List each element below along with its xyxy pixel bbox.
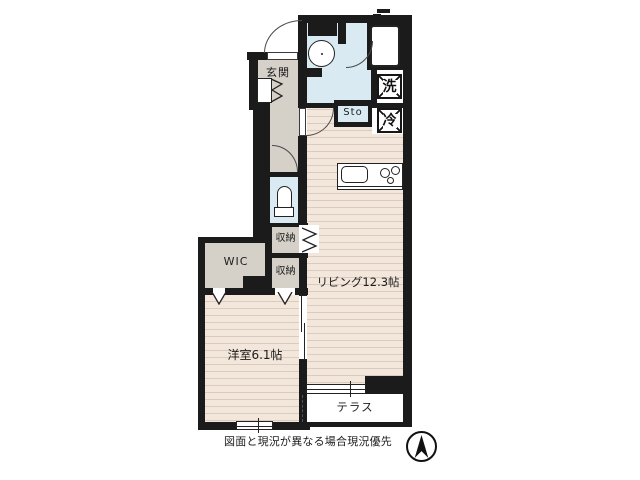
- door-swing-mark: [211, 292, 227, 305]
- terrace-wall: [306, 422, 412, 427]
- wall: [299, 255, 307, 295]
- wall: [298, 68, 322, 77]
- bedroom-label: 洋室6.1帖: [220, 349, 290, 362]
- door-swing-mark: [277, 292, 293, 305]
- floorplan-canvas: 洗 冷 玄関 Sto 収納 収納 WIC リビング12.3帖 洋室6.1帖 テラ…: [0, 0, 640, 480]
- counter-edge: [338, 186, 402, 187]
- fridge-label: 冷: [383, 114, 397, 128]
- stove-burner-icon: [391, 166, 400, 175]
- shoe-cabinet: [257, 78, 272, 103]
- bifold-door-icon: [302, 227, 318, 253]
- terrace-label: テラス: [307, 401, 403, 414]
- vanity-counter: [308, 23, 337, 36]
- storage-upper-label: 収納: [272, 233, 299, 244]
- sliding-door-icon: [299, 295, 307, 360]
- pillar: [243, 276, 270, 290]
- washer-label: 洗: [383, 80, 397, 94]
- water-heater-mark: [377, 9, 390, 13]
- wall: [198, 237, 205, 430]
- storage-lower-label: 収納: [272, 266, 299, 277]
- basin-drain-dot: [321, 53, 323, 55]
- living-area: [307, 103, 403, 393]
- wall: [403, 15, 412, 427]
- wic-label: WIC: [205, 256, 267, 268]
- sto-label: Sto: [338, 107, 368, 118]
- wall: [270, 172, 298, 177]
- living-door: [299, 108, 306, 136]
- terrace-boundary-dashed: [302, 395, 303, 422]
- wall: [338, 22, 346, 44]
- disclaimer-caption: 図面と現況が異なる場合現況優先: [224, 436, 392, 448]
- wall: [253, 103, 270, 237]
- stove-burner-icon: [387, 177, 394, 184]
- living-label: リビング12.3帖: [313, 276, 403, 289]
- toilet-tank-icon: [274, 207, 294, 217]
- folding-door-icon: [271, 78, 284, 103]
- wall: [298, 136, 307, 227]
- pillar: [365, 376, 403, 394]
- balcony-window-icon: [306, 384, 366, 394]
- entrance-label: 玄関: [258, 67, 298, 79]
- entry-door-arc: [264, 20, 302, 53]
- north-arrow-icon: [406, 431, 437, 462]
- bathtub-icon: [370, 25, 400, 67]
- bedroom-window-icon: [236, 421, 273, 430]
- kitchen-sink-icon: [341, 166, 368, 183]
- washing-machine-icon: 洗: [377, 74, 402, 99]
- kitchen-counter: [337, 163, 403, 190]
- water-heater-mark: [373, 14, 381, 17]
- entry-door: [267, 52, 298, 60]
- wall: [198, 237, 272, 243]
- wash-basin-icon: [308, 40, 335, 67]
- refrigerator-icon: 冷: [377, 108, 402, 133]
- toilet-bowl-icon: [277, 186, 292, 208]
